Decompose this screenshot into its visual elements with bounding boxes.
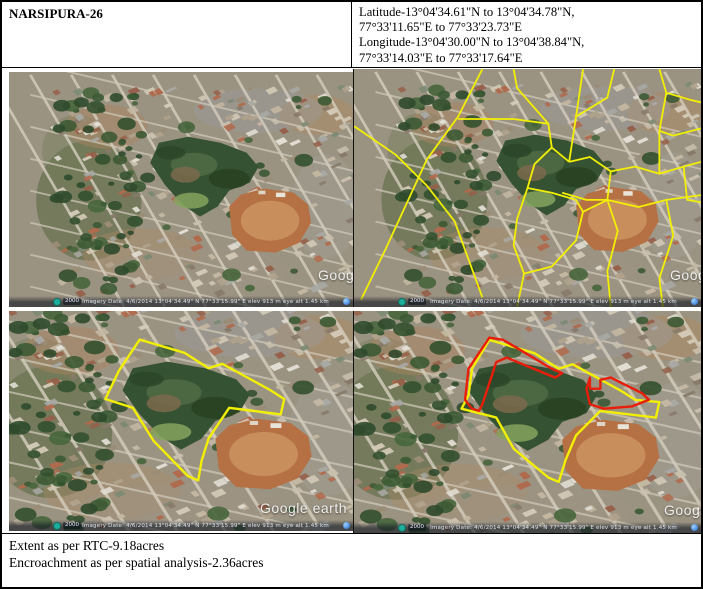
imagery-status-text: Imagery Date: 4/6/2014 13°04'34.49" N 77… xyxy=(82,523,329,529)
encroachment-text: Encroachment as per spatial analysis-2.3… xyxy=(9,554,694,571)
map-statusbar: 2000 Imagery Date: 4/6/2014 13°04'34.49"… xyxy=(9,296,353,307)
timeline-chip[interactable]: 2000 xyxy=(398,524,426,532)
timeline-chip[interactable]: 2000 xyxy=(53,522,81,530)
time-slider-label: 2000 xyxy=(408,524,426,531)
google-earth-watermark: Google earth xyxy=(318,267,353,283)
compass-icon[interactable] xyxy=(343,298,350,305)
satellite-image-satellite-plain xyxy=(9,72,353,307)
map-panel-cadastral[interactable]: Google earth 2000 Imagery Date: 4/6/2014… xyxy=(353,69,701,307)
imagery-status-text: Imagery Date: 4/6/2014 13°04'34.49" N 77… xyxy=(430,299,677,305)
imagery-status-text: Imagery Date: 4/6/2014 13°04'34.49" N 77… xyxy=(430,525,677,531)
timeline-chip[interactable]: 2000 xyxy=(398,298,426,306)
time-slider-label: 2000 xyxy=(63,522,81,529)
time-slider-icon xyxy=(398,298,406,306)
compass-icon[interactable] xyxy=(343,522,350,529)
map-panel-extent[interactable]: Google earth 2000 Imagery Date: 4/6/2014… xyxy=(9,311,353,531)
map-panel-encroachment[interactable]: Google earth 2000 Imagery Date: 4/6/2014… xyxy=(353,311,701,533)
imagery-status-text: Imagery Date: 4/6/2014 13°04'34.49" N 77… xyxy=(82,299,329,305)
time-slider-icon xyxy=(398,524,406,532)
longitude-range-line1: Longitude-13°04'30.00"N to 13°04'38.84"N… xyxy=(359,35,694,50)
report-page: NARSIPURA-26 Latitude-13°04'34.61"N to 1… xyxy=(0,0,703,589)
time-slider-label: 2000 xyxy=(408,298,426,305)
google-earth-watermark: Google earth xyxy=(664,502,701,518)
longitude-range-line2: 77°33'14.03"E to 77°33'17.64"E xyxy=(359,51,694,66)
satellite-image-satellite-extent xyxy=(9,311,353,531)
timeline-chip[interactable]: 2000 xyxy=(53,298,81,306)
satellite-image-satellite-encroachment xyxy=(354,311,701,533)
satellite-image-satellite-cadastral xyxy=(354,69,701,307)
coordinates-cell: Latitude-13°04'34.61"N to 13°04'34.78"N,… xyxy=(352,2,701,67)
latitude-range-line1: Latitude-13°04'34.61"N to 13°04'34.78"N, xyxy=(359,5,694,20)
latitude-range-line2: 77°33'11.65"E to 77°33'23.73"E xyxy=(359,20,694,35)
header-row: NARSIPURA-26 Latitude-13°04'34.61"N to 1… xyxy=(2,2,701,68)
map-statusbar: 2000 Imagery Date: 4/6/2014 13°04'34.49"… xyxy=(354,296,701,307)
time-slider-icon xyxy=(53,298,61,306)
google-earth-watermark: Google earth xyxy=(670,267,701,283)
time-slider-icon xyxy=(53,522,61,530)
compass-icon[interactable] xyxy=(691,298,698,305)
map-panel-plain[interactable]: Google earth 2000 Imagery Date: 4/6/2014… xyxy=(9,72,353,307)
map-statusbar: 2000 Imagery Date: 4/6/2014 13°04'34.49"… xyxy=(354,522,701,533)
compass-icon[interactable] xyxy=(691,524,698,531)
google-earth-watermark: Google earth xyxy=(260,500,347,516)
site-title: NARSIPURA-26 xyxy=(2,2,352,67)
map-statusbar: 2000 Imagery Date: 4/6/2014 13°04'34.49"… xyxy=(9,520,353,531)
footer-row: Extent as per RTC-9.18acres Encroachment… xyxy=(2,533,701,587)
extent-text: Extent as per RTC-9.18acres xyxy=(9,537,694,554)
time-slider-label: 2000 xyxy=(63,298,81,305)
